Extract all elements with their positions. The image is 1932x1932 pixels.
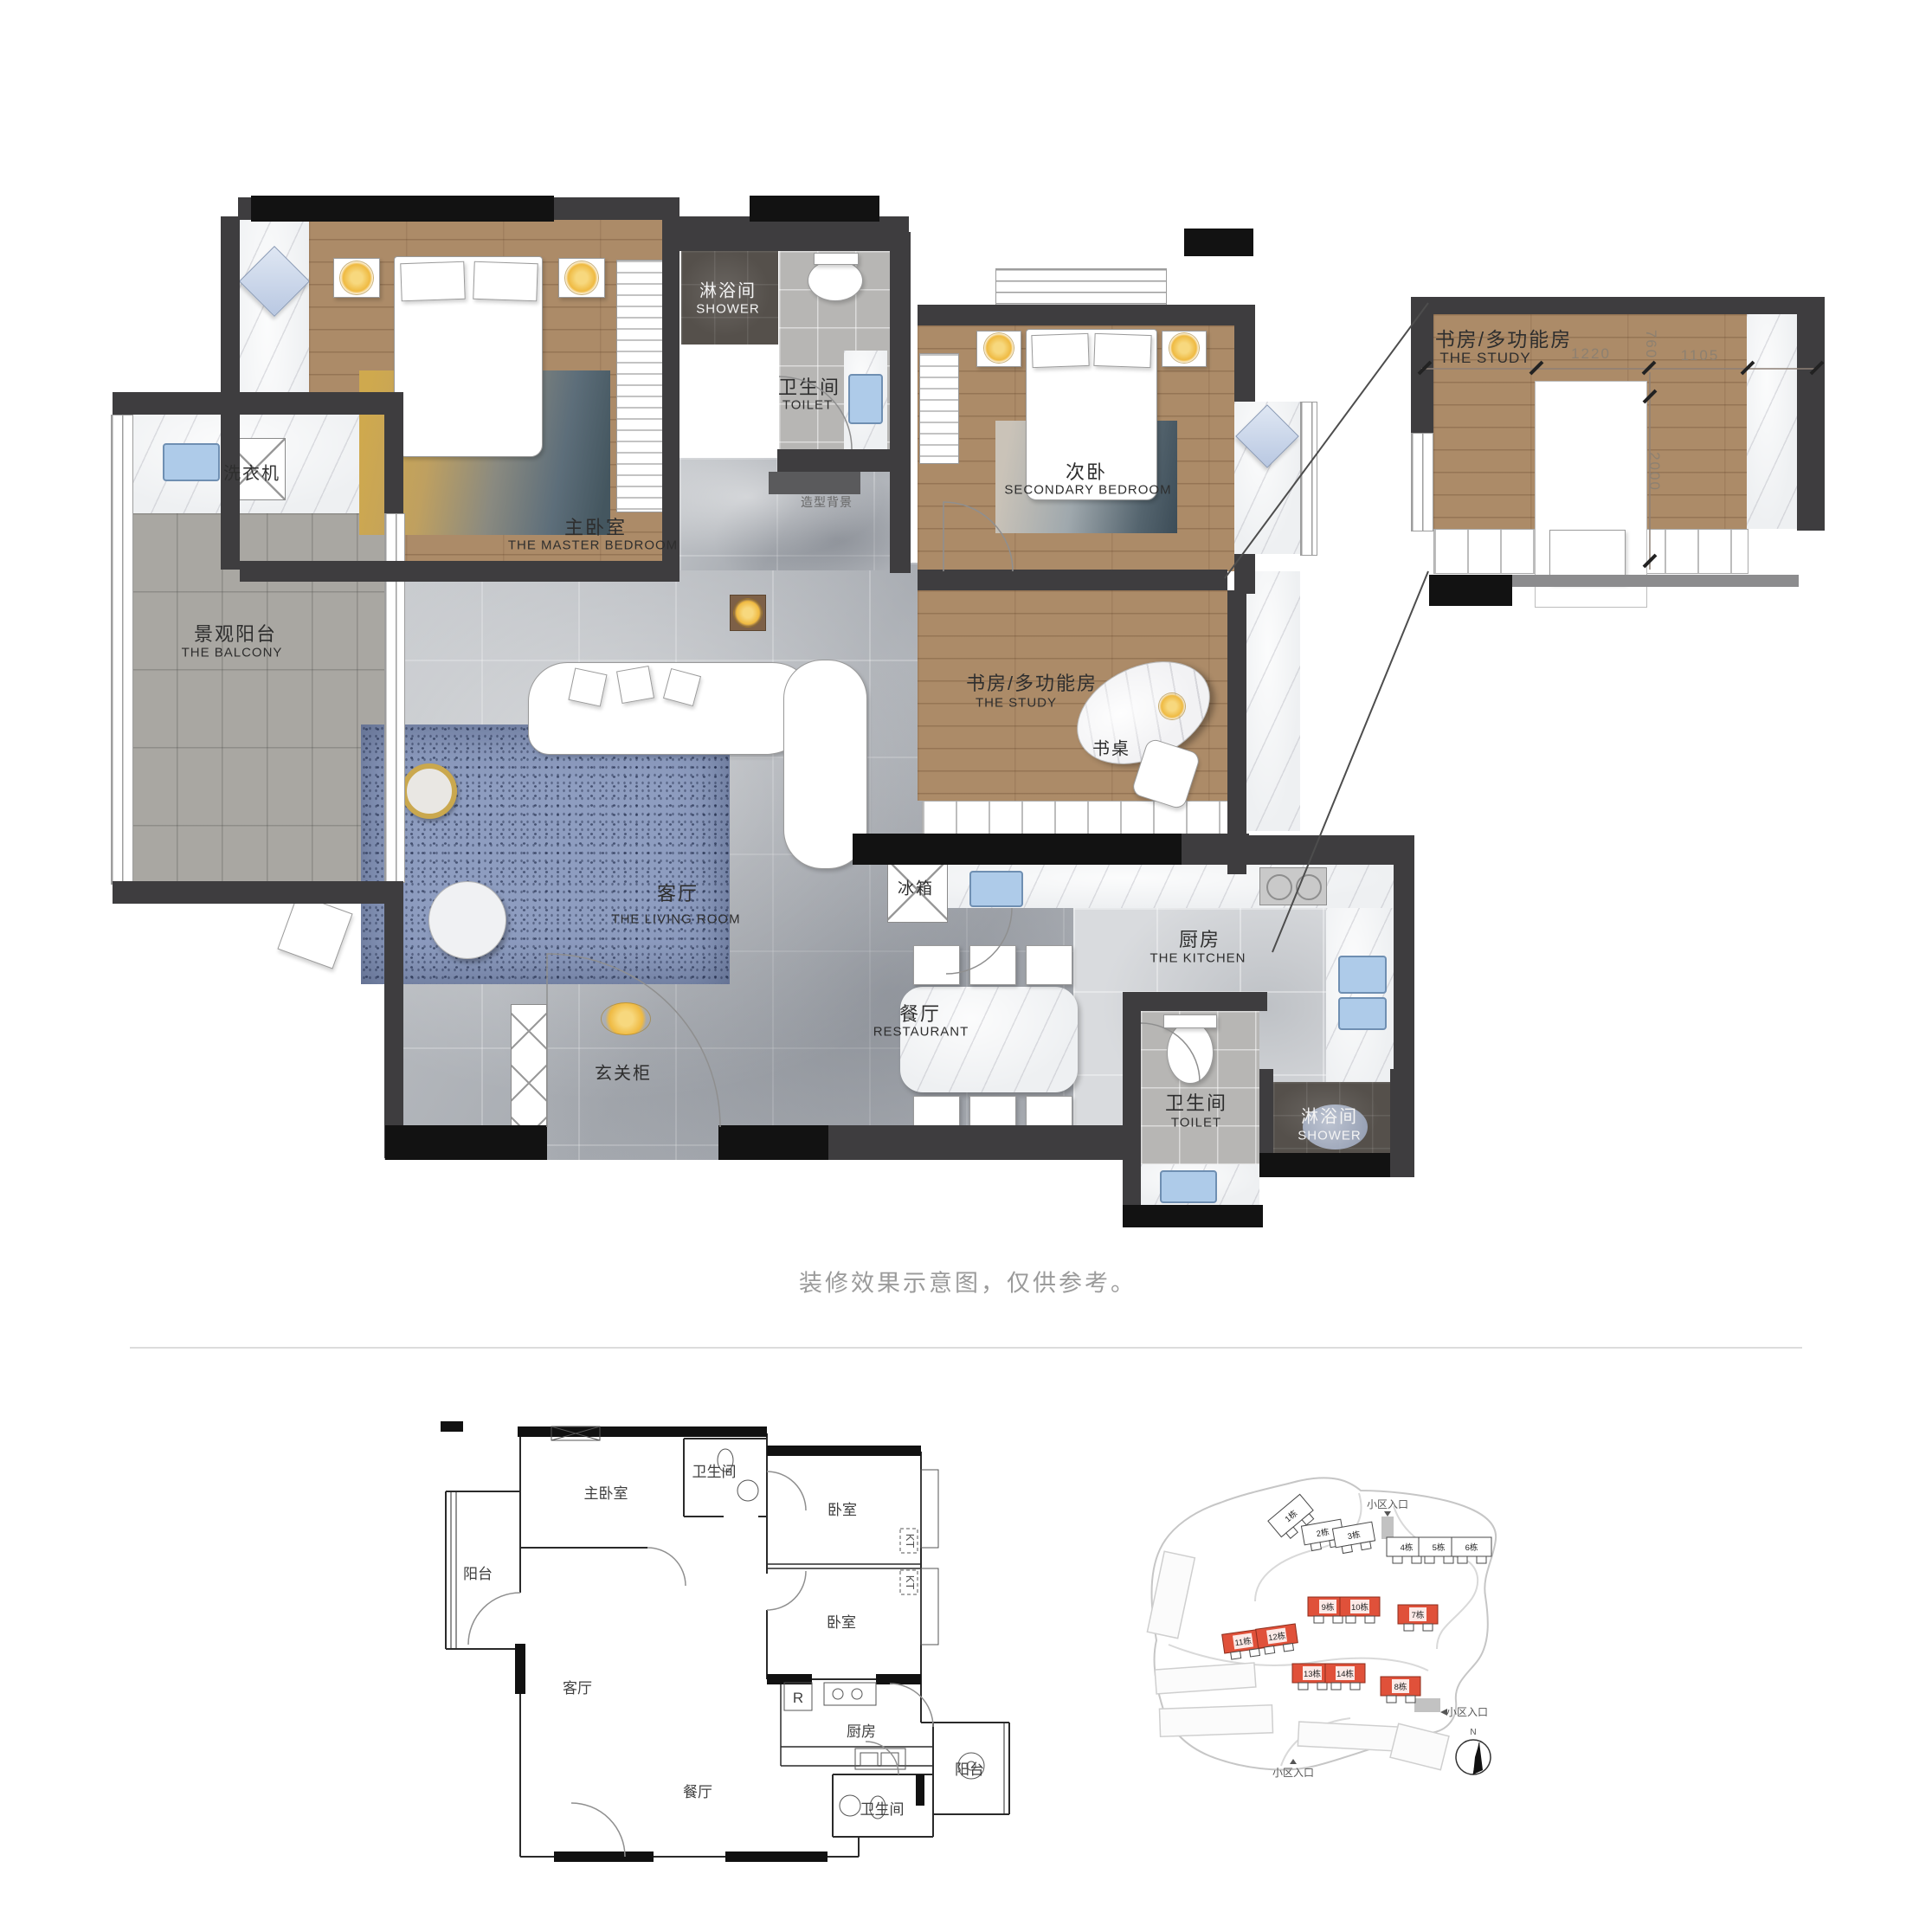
- cad-label-kt2: KT: [904, 1575, 917, 1590]
- toilet-top-fixture: [808, 260, 863, 301]
- cad-label-living: 客厅: [563, 1680, 592, 1697]
- label-master-bedroom-zh: 主卧室: [564, 512, 627, 540]
- label-kitchen-en: THE KITCHEN: [1150, 951, 1246, 966]
- sofa-pillow: [568, 667, 607, 706]
- inset-label-study-zh: 书房/多功能房: [1435, 323, 1572, 352]
- label-backdrop: 造型背景: [801, 493, 853, 511]
- label-toilet-top-en: TOILET: [782, 398, 833, 413]
- wall: [918, 305, 1255, 325]
- cad-label-bedroom-bottom: 卧室: [827, 1614, 856, 1631]
- study-window-bench: [922, 801, 1229, 835]
- label-toilet-bottom-zh: 卫生间: [1165, 1088, 1227, 1116]
- master-wardrobe: [616, 260, 665, 512]
- secondary-bay-glass: [1300, 402, 1317, 556]
- cad-plan: 阳台 主卧室 卫生间 客厅 卧室 卧室 餐厅 厨房 阳台 卫生间 R KT KT: [329, 1411, 1030, 1917]
- cad-label-bath-top: 卫生间: [692, 1464, 737, 1480]
- north-compass-icon: N: [1456, 1728, 1491, 1774]
- inset-window: [1411, 433, 1435, 531]
- label-secondary-bedroom-zh: 次卧: [1066, 457, 1107, 485]
- bedside-lamp: [564, 261, 599, 295]
- svg-text:N: N: [1470, 1728, 1476, 1737]
- floorplan-poster: 主卧室 THE MASTER BEDROOM 淋浴间 SHOWER 卫生间 TO…: [0, 0, 1932, 1932]
- cad-label-fridge: R: [793, 1690, 803, 1706]
- dining-chair: [969, 945, 1016, 985]
- svg-text:8栋: 8栋: [1394, 1682, 1407, 1692]
- label-shower-bottom-zh: 淋浴间: [1301, 1103, 1358, 1128]
- cad-label-dining: 餐厅: [683, 1784, 712, 1800]
- gold-tray-table: [402, 763, 457, 819]
- wall: [1182, 834, 1249, 865]
- wall: [828, 1125, 1123, 1160]
- table-lamp: [733, 598, 763, 628]
- bedside-lamp: [983, 332, 1014, 364]
- svg-text:6栋: 6栋: [1465, 1542, 1478, 1553]
- site-entrance-right-label: 小区入口: [1446, 1706, 1488, 1718]
- svg-text:14栋: 14栋: [1336, 1669, 1355, 1679]
- inset-wall-black: [1429, 575, 1512, 606]
- svg-text:13栋: 13栋: [1304, 1669, 1322, 1679]
- svg-text:9栋: 9栋: [1322, 1602, 1335, 1613]
- sink: [1338, 956, 1387, 994]
- toilet-bottom-fixture: [1167, 1021, 1214, 1084]
- label-washing-machine: 洗衣机: [223, 460, 280, 485]
- wall: [918, 570, 1227, 590]
- kitchen-bay-strip: [1246, 571, 1300, 831]
- label-restaurant-zh: 餐厅: [899, 999, 941, 1027]
- wall-black: [1259, 1153, 1394, 1177]
- label-living-room-zh: 客厅: [657, 879, 699, 906]
- secondary-wardrobe: [919, 353, 959, 464]
- label-balcony-zh: 景观阳台: [194, 619, 277, 647]
- cooktop-burner: [1266, 874, 1292, 900]
- wall: [1234, 554, 1255, 594]
- bed-pillow: [1031, 333, 1089, 368]
- wall: [662, 216, 679, 563]
- label-toilet-bottom-en: TOILET: [1171, 1116, 1221, 1130]
- wall-black: [718, 1125, 828, 1160]
- label-shower-bottom-en: SHOWER: [1298, 1129, 1362, 1143]
- wall: [890, 232, 911, 573]
- label-restaurant-en: RESTAURANT: [873, 1025, 969, 1040]
- wall: [113, 881, 388, 904]
- cad-label-kt1: KT: [904, 1534, 917, 1549]
- caption: 装修效果示意图，仅供参考。: [799, 1265, 1137, 1298]
- bed-pillow: [473, 261, 538, 302]
- sink: [163, 443, 220, 481]
- inset-side-floor: [1747, 314, 1797, 529]
- label-secondary-bedroom-en: SECONDARY BEDROOM: [1004, 483, 1171, 498]
- cad-label-bath-bottom: 卫生间: [860, 1801, 905, 1818]
- desk-lamp: [1158, 692, 1186, 720]
- label-balcony-en: THE BALCONY: [182, 646, 283, 660]
- cad-label-master: 主卧室: [584, 1485, 628, 1502]
- wall: [1123, 992, 1141, 1208]
- label-master-bedroom-en: THE MASTER BEDROOM: [508, 538, 678, 553]
- label-shower-top-zh: 淋浴间: [699, 277, 757, 302]
- label-kitchen-zh: 厨房: [1179, 924, 1220, 952]
- balcony-window: [111, 415, 133, 885]
- inset-dim-1220: 1220: [1571, 345, 1611, 363]
- label-fridge: 冰箱: [898, 876, 934, 899]
- wall: [777, 449, 911, 472]
- cad-label-bedroom-mid: 卧室: [828, 1502, 857, 1518]
- wall-black: [750, 196, 879, 222]
- toilet-top-tank: [814, 253, 859, 265]
- toilet-bottom-tank: [1163, 1014, 1217, 1028]
- label-shower-top-en: SHOWER: [696, 302, 760, 317]
- inset-wall: [1797, 297, 1825, 531]
- svg-text:4栋: 4栋: [1401, 1542, 1414, 1553]
- sink: [1338, 997, 1387, 1030]
- svg-text:5栋: 5栋: [1433, 1542, 1446, 1553]
- wall: [1234, 305, 1255, 402]
- bed-pillow: [400, 261, 465, 302]
- inset-wall: [1411, 297, 1825, 314]
- wall: [384, 881, 403, 1158]
- living-rug: [361, 724, 730, 984]
- wall: [1390, 1069, 1414, 1177]
- svg-text:10栋: 10栋: [1351, 1602, 1369, 1613]
- inset-dim-760: 760: [1642, 330, 1659, 359]
- label-living-room-en: THE LIVING ROOM: [611, 912, 740, 927]
- svg-text:7栋: 7栋: [1412, 1610, 1425, 1620]
- floor-pouf: [277, 893, 352, 969]
- bedside-lamp: [339, 261, 374, 295]
- bed-pillow: [1093, 333, 1151, 368]
- wall: [240, 561, 679, 582]
- wall-black: [251, 196, 554, 222]
- cad-label-kitchen: 厨房: [847, 1723, 876, 1740]
- sofa-pillow: [616, 666, 654, 704]
- label-desk: 书桌: [1092, 735, 1130, 760]
- backdrop-niche: [769, 472, 860, 494]
- cad-bays: [551, 1426, 938, 1645]
- entry-lamp: [601, 1002, 651, 1035]
- wall: [384, 392, 403, 513]
- divider: [130, 1347, 1802, 1349]
- wall-black: [385, 1125, 547, 1160]
- wall: [1249, 835, 1396, 865]
- wall-black: [853, 834, 1182, 865]
- site-entrance-top-label: 小区入口: [1367, 1498, 1408, 1510]
- site-plan: 1栋 2栋 3栋 4栋 5栋 6栋 7栋 8栋 9栋 10栋: [1125, 1428, 1575, 1878]
- wall: [1227, 590, 1246, 874]
- label-toilet-top-zh: 卫生间: [778, 372, 840, 400]
- inset-label-study-en: THE STUDY: [1439, 350, 1530, 367]
- inset-wall: [1512, 575, 1799, 587]
- inset-dim-1105: 1105: [1681, 347, 1720, 364]
- wall: [1123, 992, 1267, 1011]
- secondary-baywindow-top: [995, 268, 1167, 308]
- site-entrance-bottom-label: 小区入口: [1272, 1767, 1314, 1779]
- coffee-table: [428, 881, 506, 959]
- dining-chair: [1026, 945, 1072, 985]
- dining-chair: [913, 945, 960, 985]
- label-entry-cabinet: 玄关柜: [595, 1059, 652, 1085]
- inset-dim-2000: 2000: [1645, 452, 1663, 492]
- cooktop-burner: [1296, 874, 1322, 900]
- label-study-en: THE STUDY: [976, 696, 1057, 711]
- sink: [969, 871, 1023, 907]
- label-study-zh: 书房/多功能房: [966, 668, 1098, 696]
- sink: [1160, 1170, 1217, 1203]
- bedside-lamp: [1169, 332, 1200, 364]
- cad-label-balcony-left: 阳台: [463, 1566, 493, 1582]
- wall-black: [1184, 229, 1253, 256]
- cad-label-balcony-right: 阳台: [955, 1761, 984, 1778]
- wall: [113, 392, 390, 415]
- wall: [679, 216, 909, 251]
- sink: [848, 374, 883, 424]
- wall-black: [1123, 1205, 1263, 1227]
